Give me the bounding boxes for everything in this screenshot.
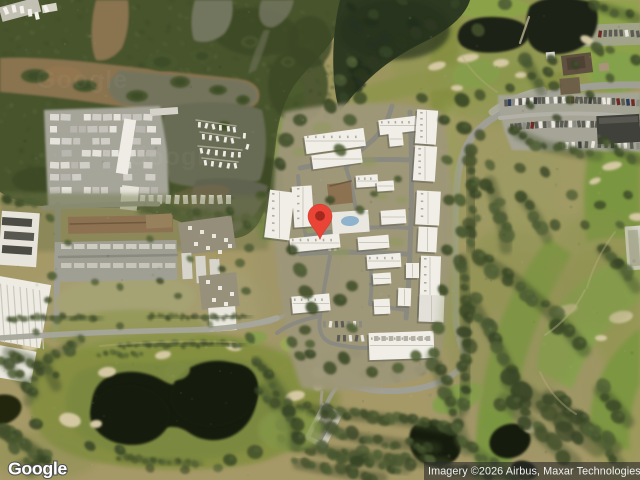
svg-text:Google: Google <box>8 459 67 479</box>
svg-text:Google: Google <box>36 66 128 94</box>
svg-text:Imagery ©2026 Airbus, Maxar Te: Imagery ©2026 Airbus, Maxar Technologies <box>428 466 640 478</box>
svg-text:Google: Google <box>128 143 220 171</box>
